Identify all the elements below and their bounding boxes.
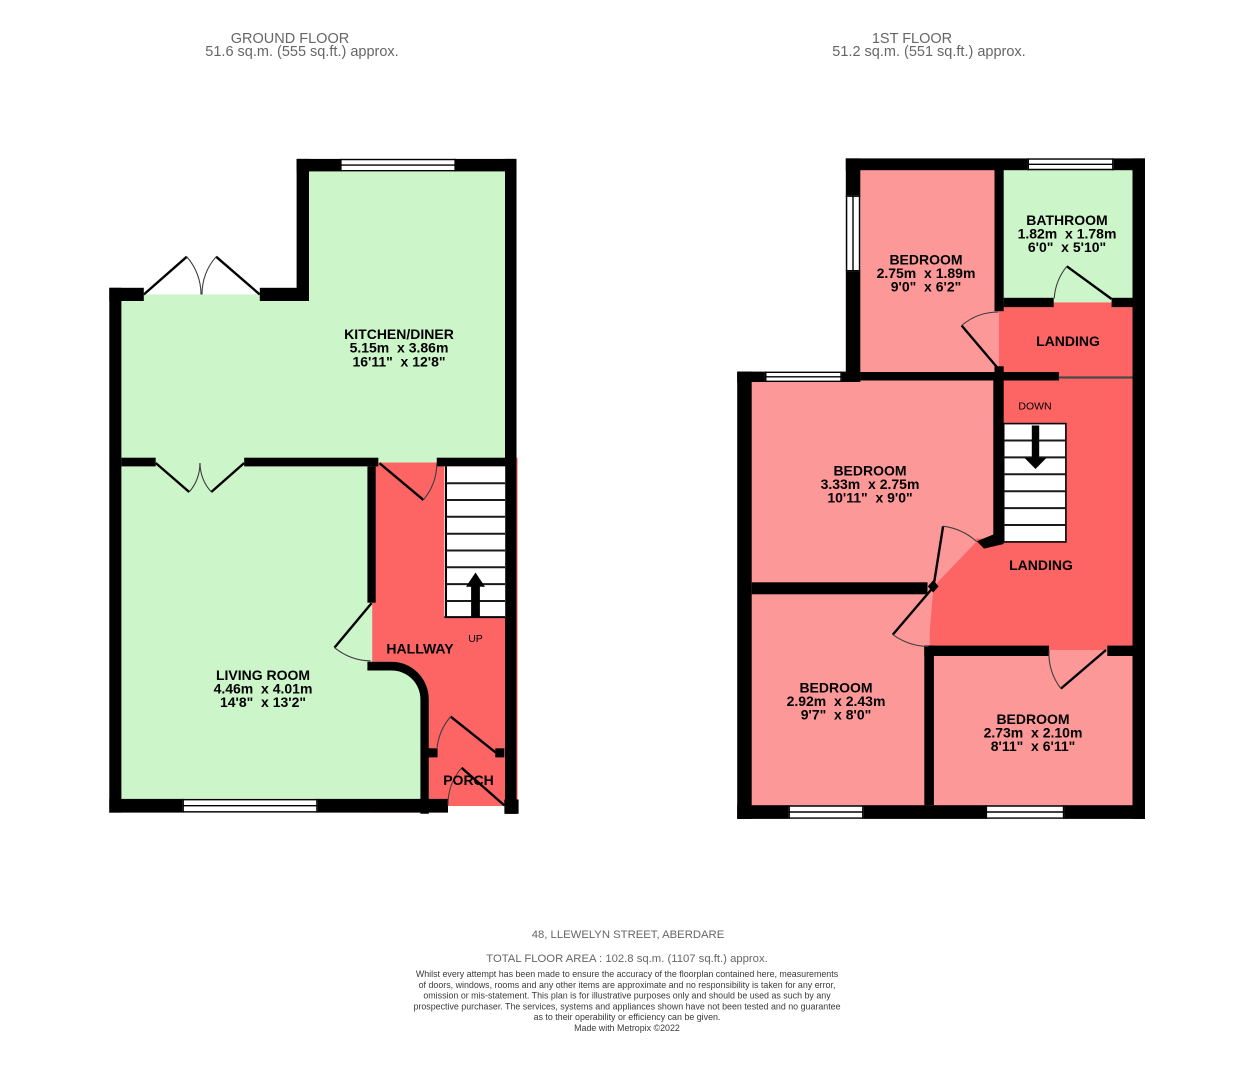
svg-text:9'7" x 8'0": 9'7" x 8'0" [801,707,872,723]
svg-text:HALLWAY: HALLWAY [386,640,454,656]
svg-text:omission or mis-statement. Thi: omission or mis-statement. This plan is … [423,991,831,1001]
svg-text:PORCH: PORCH [443,772,494,788]
svg-text:51.2 sq.m. (551 sq.ft.) approx: 51.2 sq.m. (551 sq.ft.) approx. [832,44,1025,60]
svg-text:51.6 sq.m. (555 sq.ft.) approx: 51.6 sq.m. (555 sq.ft.) approx. [205,44,398,60]
svg-text:DOWN: DOWN [1018,401,1051,413]
svg-text:of doors, windows, rooms and a: of doors, windows, rooms and any other i… [419,980,836,990]
svg-text:9'0" x 6'2": 9'0" x 6'2" [891,279,962,295]
svg-text:UP: UP [468,633,483,645]
svg-text:as to their operability or eff: as to their operability or efficiency ca… [534,1012,721,1022]
svg-text:Made with Metropix ©2022: Made with Metropix ©2022 [574,1023,680,1033]
svg-text:48, LLEWELYN STREET, ABERDARE: 48, LLEWELYN STREET, ABERDARE [532,929,725,941]
svg-text:10'11" x 9'0": 10'11" x 9'0" [827,490,912,506]
svg-text:6'0" x 5'10": 6'0" x 5'10" [1028,239,1106,255]
svg-text:TOTAL FLOOR AREA : 102.8 sq.m.: TOTAL FLOOR AREA : 102.8 sq.m. (1107 sq.… [486,953,768,965]
svg-text:14'8" x 13'2": 14'8" x 13'2" [220,694,306,710]
svg-text:LANDING: LANDING [1036,333,1100,349]
svg-text:prospective purchaser. The ser: prospective purchaser. The services, sys… [413,1001,840,1011]
svg-text:Whilst every attempt has been: Whilst every attempt has been made to en… [416,969,839,979]
svg-text:8'11" x 6'11": 8'11" x 6'11" [991,738,1076,754]
svg-text:16'11" x 12'8": 16'11" x 12'8" [352,353,445,369]
svg-text:LANDING: LANDING [1009,557,1073,573]
